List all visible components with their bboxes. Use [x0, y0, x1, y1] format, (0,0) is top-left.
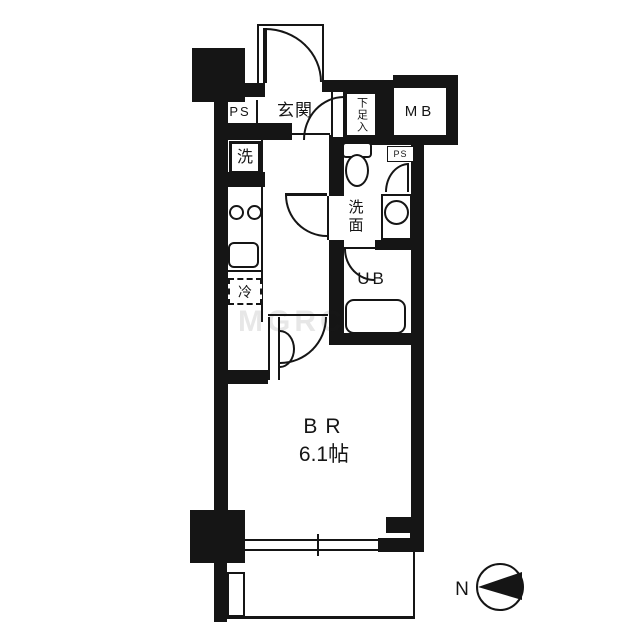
washer-box: 洗	[229, 141, 261, 174]
wash-basin	[384, 200, 409, 225]
washroom-door-arc	[285, 195, 327, 237]
meter-box-label: MB	[394, 88, 446, 135]
pipe-space-right-label: PS	[388, 147, 413, 161]
shoe-cabinet-label: 下足入	[347, 96, 375, 133]
pipe-space-divider-line	[256, 100, 258, 123]
pillar-top-left	[192, 48, 245, 102]
washer-label: 洗	[232, 144, 258, 171]
entry-wall-stub	[245, 83, 265, 97]
shoe-mb-divider-wall	[377, 88, 394, 137]
floor-plan: 洗 冷 下足入 MB PS PS 洗面 UB 玄関 BR 6.1帖 MGRC N	[0, 0, 640, 640]
pipe-space-right-box: PS	[387, 146, 414, 162]
washroom-door-leaf	[285, 193, 327, 196]
washroom-door-jamb-line	[327, 196, 329, 240]
left-wall	[214, 100, 228, 512]
watermark: MGRC	[238, 305, 346, 339]
balcony-left-wall	[214, 563, 227, 622]
counter-bottom-line	[226, 270, 263, 272]
right-wall	[411, 145, 424, 525]
kitchen-sink	[228, 242, 259, 268]
shoe-cabinet-box: 下足入	[345, 92, 377, 137]
toilet-bowl	[345, 154, 369, 187]
entrance-door-leaf	[263, 28, 267, 83]
balcony-outline	[227, 548, 415, 619]
fridge-label: 冷	[230, 280, 260, 303]
entrance-label: 玄関	[270, 99, 320, 121]
hall-bottom-wall	[214, 123, 292, 140]
kitchen-separator-wall	[214, 172, 265, 187]
pipe-space-left-label: PS	[224, 103, 256, 120]
stove-burner-left	[229, 205, 244, 220]
bedroom-size-label: 6.1帖	[288, 441, 360, 467]
bathtub	[345, 299, 406, 334]
bath-top-wall	[375, 240, 411, 250]
unit-bath-label: UB	[350, 268, 394, 288]
fridge-space: 冷	[228, 278, 262, 305]
compass-icon	[470, 558, 530, 618]
balcony-service-box	[227, 572, 245, 617]
washroom-label: 洗面	[345, 194, 365, 240]
bedroom-label: BR	[296, 414, 356, 438]
stove-burner-right	[247, 205, 262, 220]
washroom-fixture-arc	[385, 163, 409, 192]
washroom-fixture-line	[407, 163, 409, 192]
bedroom-top-left-wall	[214, 370, 268, 384]
